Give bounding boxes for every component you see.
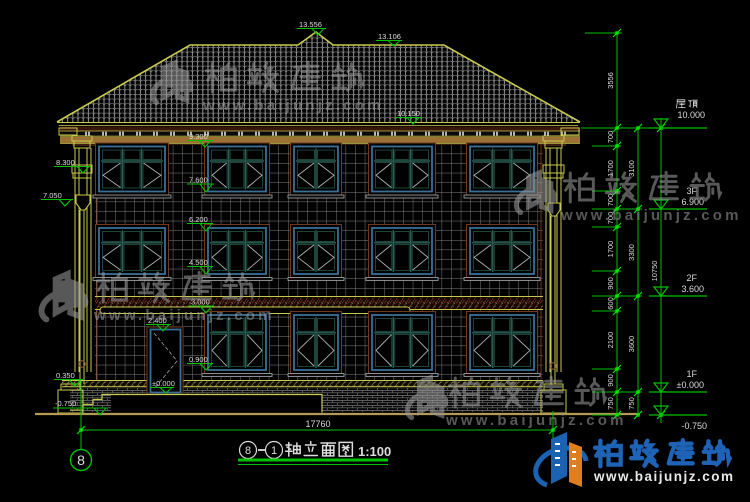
svg-text:4.500: 4.500 bbox=[189, 258, 208, 267]
svg-text:0.900: 0.900 bbox=[189, 355, 208, 364]
svg-text:3556: 3556 bbox=[606, 72, 615, 89]
svg-text:8: 8 bbox=[77, 452, 85, 468]
svg-text:6.200: 6.200 bbox=[189, 215, 208, 224]
svg-text:3300: 3300 bbox=[627, 244, 636, 261]
svg-text:-0.750: -0.750 bbox=[55, 399, 76, 408]
svg-text:±0.000: ±0.000 bbox=[677, 380, 704, 390]
svg-text:3.600: 3.600 bbox=[681, 284, 704, 294]
svg-text:17760: 17760 bbox=[305, 419, 330, 429]
svg-text:-0.750: -0.750 bbox=[681, 421, 707, 431]
svg-text:750: 750 bbox=[606, 397, 615, 410]
svg-text:13.106: 13.106 bbox=[378, 32, 401, 41]
svg-text:www.baijunjz.com: www.baijunjz.com bbox=[445, 412, 627, 429]
svg-text:750: 750 bbox=[627, 397, 636, 410]
svg-text:3100: 3100 bbox=[627, 160, 636, 177]
svg-text:2100: 2100 bbox=[606, 332, 615, 349]
svg-text:10.150: 10.150 bbox=[397, 109, 420, 118]
svg-text:8: 8 bbox=[245, 445, 251, 457]
svg-text:www.baijunjz.com: www.baijunjz.com bbox=[93, 307, 275, 324]
svg-text:10750: 10750 bbox=[650, 261, 659, 282]
svg-text:900: 900 bbox=[606, 374, 615, 387]
svg-text:1:100: 1:100 bbox=[358, 444, 391, 459]
svg-text:www.baijunjz.com: www.baijunjz.com bbox=[560, 207, 742, 224]
svg-text:9.300: 9.300 bbox=[189, 132, 208, 141]
svg-text:3600: 3600 bbox=[627, 336, 636, 353]
svg-text:7.050: 7.050 bbox=[43, 191, 62, 200]
svg-text:±0.000: ±0.000 bbox=[152, 379, 175, 388]
svg-text:600: 600 bbox=[606, 297, 615, 310]
svg-text:8.300: 8.300 bbox=[56, 158, 75, 167]
svg-text:13.556: 13.556 bbox=[299, 20, 322, 29]
svg-text:10.000: 10.000 bbox=[677, 110, 705, 120]
svg-text:1: 1 bbox=[271, 445, 277, 457]
svg-text:www.baijunjz.com: www.baijunjz.com bbox=[202, 97, 384, 114]
svg-text:www.baijunjz.com: www.baijunjz.com bbox=[593, 469, 735, 484]
svg-text:700: 700 bbox=[606, 131, 615, 144]
svg-text:0.350: 0.350 bbox=[56, 371, 75, 380]
svg-text:2F: 2F bbox=[686, 273, 697, 283]
svg-text:900: 900 bbox=[606, 277, 615, 290]
svg-text:1700: 1700 bbox=[606, 241, 615, 258]
svg-text:700: 700 bbox=[606, 194, 615, 207]
svg-text:1F: 1F bbox=[686, 369, 697, 379]
svg-text:7.600: 7.600 bbox=[189, 176, 208, 185]
